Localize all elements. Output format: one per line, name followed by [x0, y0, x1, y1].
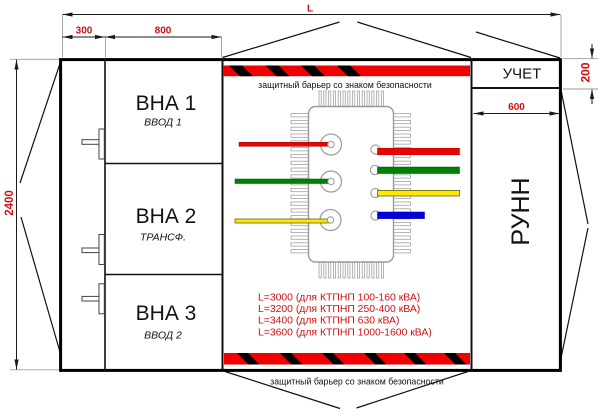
svg-text:800: 800	[155, 26, 172, 37]
svg-text:200: 200	[579, 62, 593, 82]
svg-text:L: L	[307, 4, 313, 15]
svg-text:L=3200 (для КТПНП 250-400 кВА): L=3200 (для КТПНП 250-400 кВА)	[258, 304, 420, 315]
svg-text:ВВОД 2: ВВОД 2	[144, 330, 182, 342]
svg-text:ВНА 3: ВНА 3	[136, 302, 197, 325]
svg-text:L=3000 (для КТПНП 100-160 кВА): L=3000 (для КТПНП 100-160 кВА)	[258, 293, 420, 304]
svg-text:L=3400 (для КТПНП 630 кВА): L=3400 (для КТПНП 630 кВА)	[258, 316, 399, 327]
svg-text:защитный барьер со знаком безо: защитный барьер со знаком безопасности	[258, 80, 432, 90]
svg-text:УЧЕТ: УЧЕТ	[503, 66, 542, 83]
svg-text:ВНА 2: ВНА 2	[136, 205, 197, 228]
svg-text:L=3600 (для КТПНП 1000-1600 кВ: L=3600 (для КТПНП 1000-1600 кВА)	[258, 327, 432, 338]
svg-text:защитный барьер со знаком безо: защитный барьер со знаком безопасности	[270, 377, 444, 387]
svg-text:600: 600	[508, 102, 525, 113]
svg-text:300: 300	[76, 26, 93, 37]
svg-text:2400: 2400	[4, 190, 16, 216]
svg-text:ВВОД 1: ВВОД 1	[144, 117, 182, 129]
svg-text:ВНА 1: ВНА 1	[136, 92, 197, 115]
svg-text:ТРАНСФ.: ТРАНСФ.	[140, 232, 186, 244]
svg-text:РУНН: РУНН	[507, 177, 535, 245]
